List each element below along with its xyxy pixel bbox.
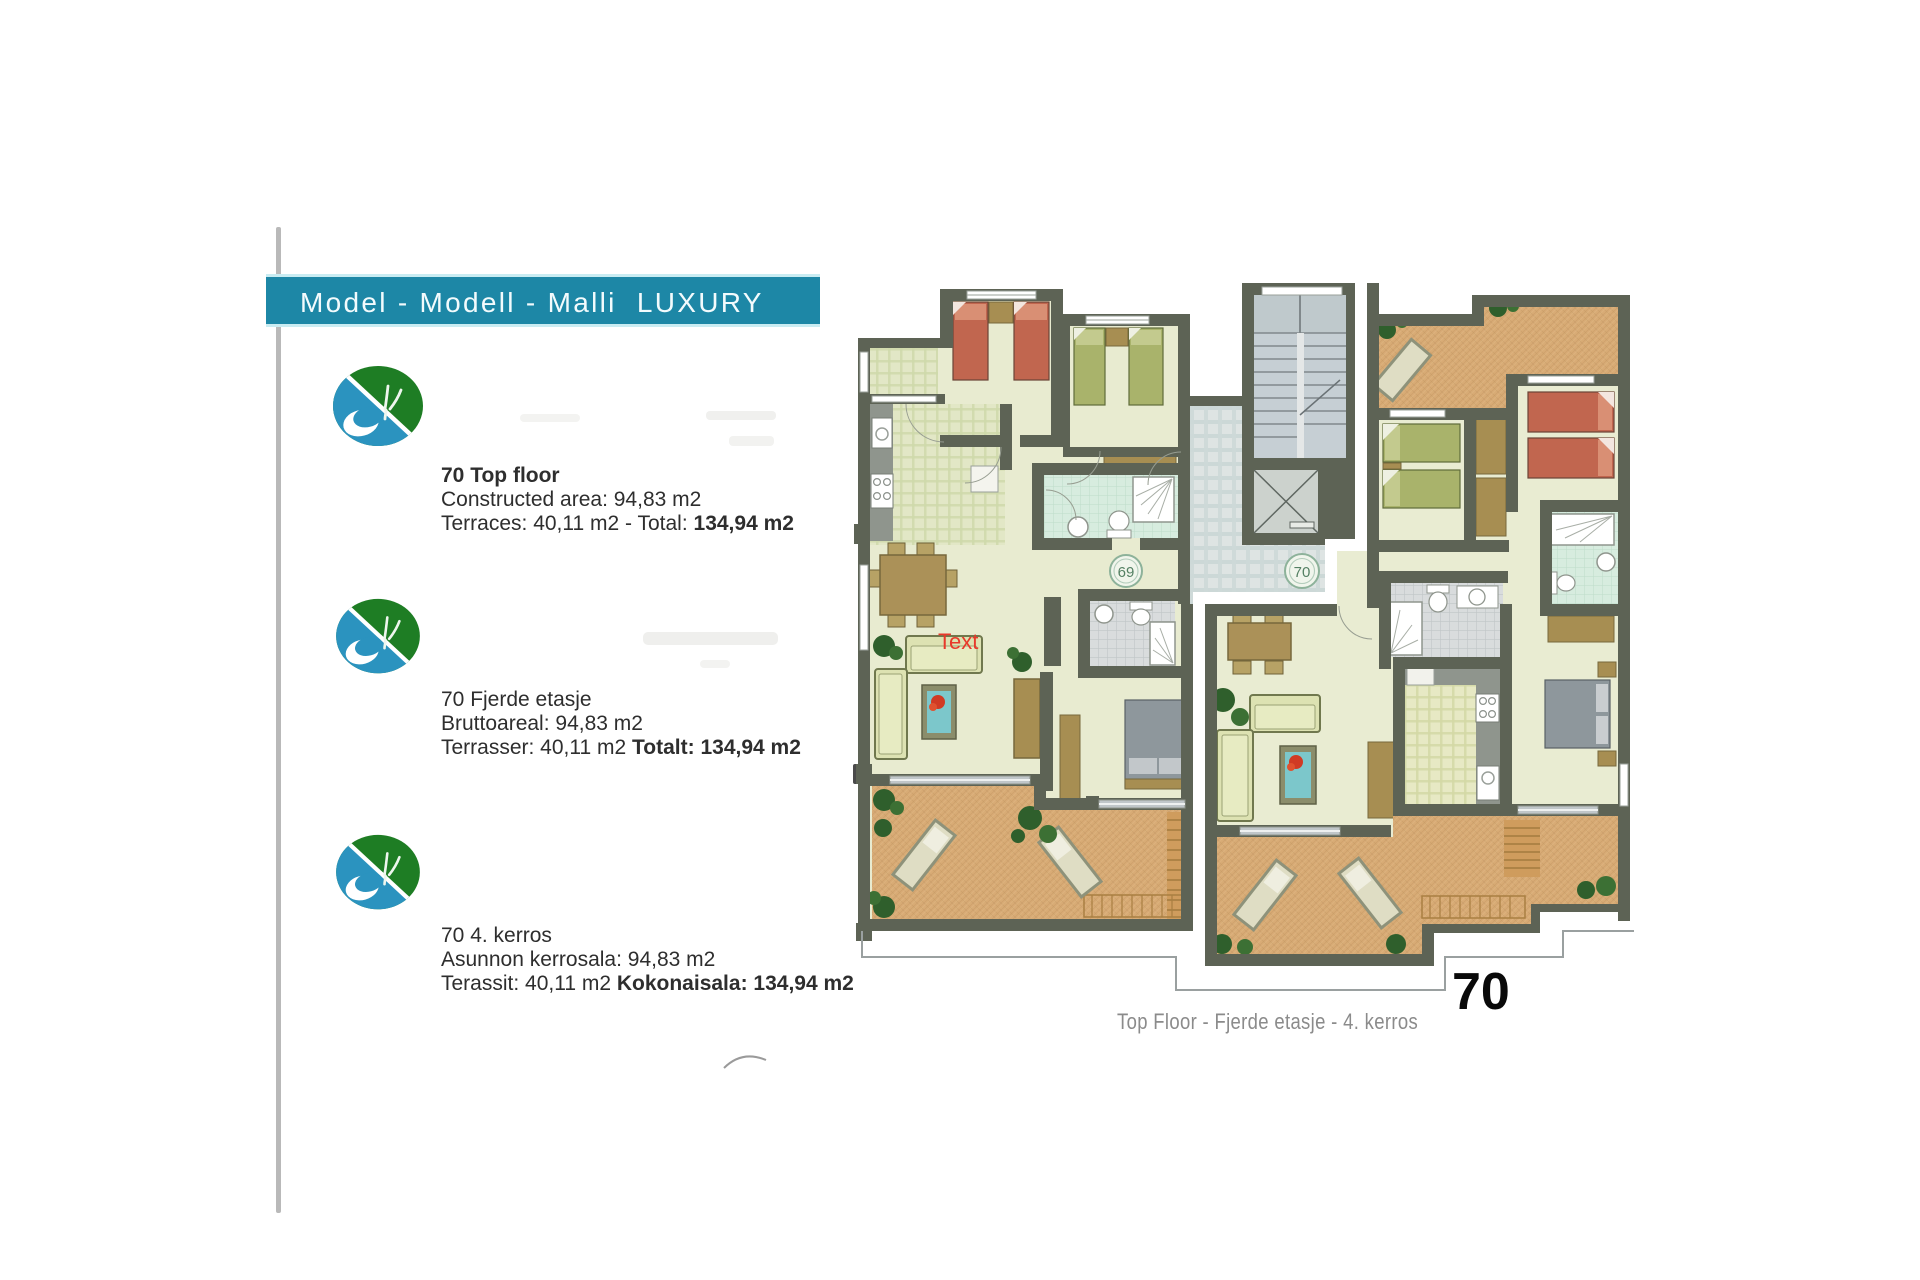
svg-text:70: 70 bbox=[1294, 564, 1311, 581]
svg-text:69: 69 bbox=[1118, 564, 1135, 581]
